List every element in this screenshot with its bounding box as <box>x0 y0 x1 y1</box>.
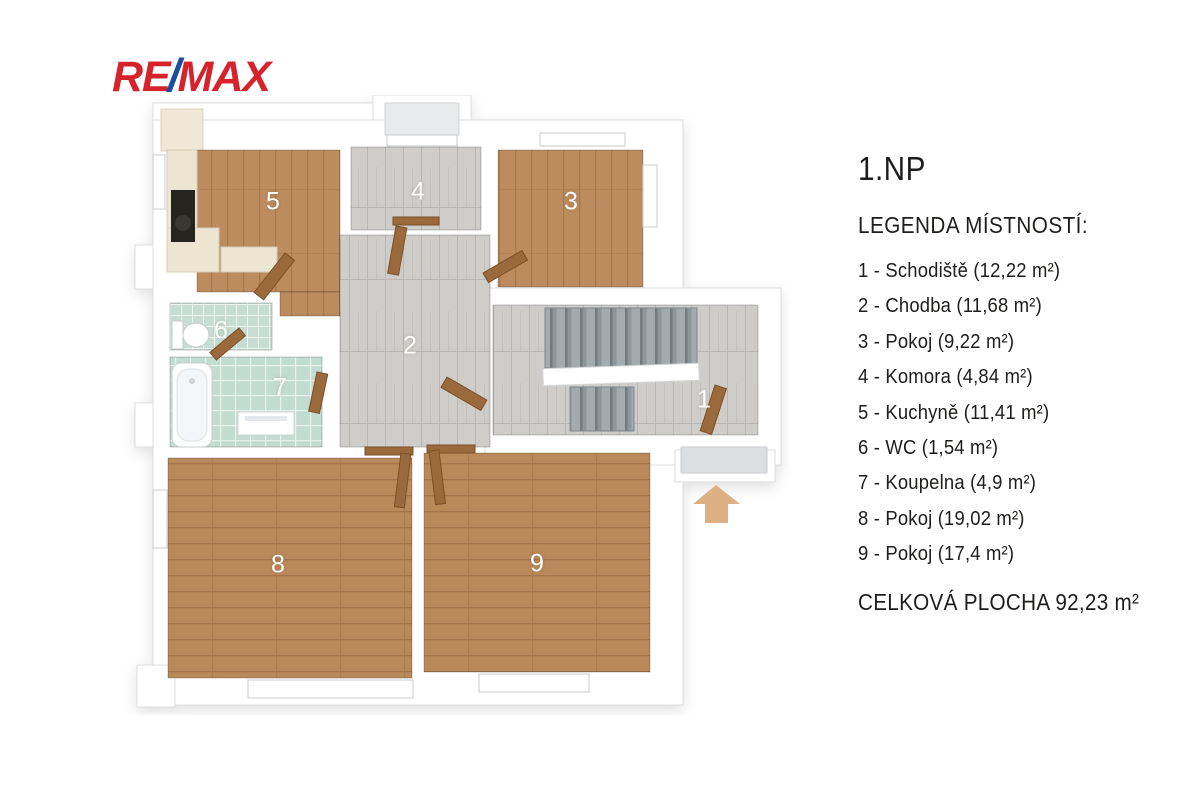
room-kitchen-threshold <box>280 292 340 316</box>
bathtub-icon <box>172 363 212 447</box>
window-pokoj9-bottom <box>479 674 589 692</box>
page: RE/MAX <box>0 0 1200 799</box>
legend-item-2: 2 - Chodba (11,68 m²) <box>858 288 1200 323</box>
window-pokoj3-right <box>643 165 657 227</box>
logo-re: RE <box>112 53 170 101</box>
legend-item-1: 1 - Schodiště (12,22 m²) <box>858 253 1200 288</box>
legend-item-3: 3 - Pokoj (9,22 m²) <box>858 324 1200 359</box>
floor-plan: 1 2 3 4 5 6 7 8 9 <box>115 95 790 715</box>
window-kitchen-left <box>153 155 165 209</box>
legend-list: 1 - Schodiště (12,22 m²) 2 - Chodba (11,… <box>858 253 1200 572</box>
legend-item-4: 4 - Komora (4,84 m²) <box>858 359 1200 394</box>
room-label-3: 3 <box>564 188 578 217</box>
room-label-9: 9 <box>530 550 544 579</box>
toilet-icon <box>172 321 209 349</box>
room-label-1: 1 <box>697 386 711 415</box>
legend-item-9: 9 - Pokoj (17,4 m²) <box>858 536 1200 571</box>
room-label-8: 8 <box>271 551 285 580</box>
floor-title: 1.NP <box>858 150 1200 188</box>
legend-item-5: 5 - Kuchyně (11,41 m²) <box>858 395 1200 430</box>
entrance-opening <box>681 447 767 473</box>
legend-item-6: 6 - WC (1,54 m²) <box>858 430 1200 465</box>
legend-heading: LEGENDA MÍSTNOSTÍ: <box>858 212 1200 239</box>
window-pokoj8-left <box>153 490 167 548</box>
legend-item-7: 7 - Koupelna (4,9 m²) <box>858 465 1200 500</box>
chimney <box>161 109 203 151</box>
entrance-arrow-icon <box>693 485 740 523</box>
legend-item-8: 8 - Pokoj (19,02 m²) <box>858 501 1200 536</box>
window-balcony-door <box>387 135 457 146</box>
room-label-6: 6 <box>214 317 228 346</box>
room-pokoj3-floor <box>498 150 643 287</box>
room-label-2: 2 <box>403 332 417 361</box>
window-pokoj8-bottom <box>248 680 413 698</box>
door-komora <box>393 217 439 225</box>
window-pokoj3-top <box>540 133 625 146</box>
room-label-4: 4 <box>411 178 425 207</box>
room-pokoj8-floor <box>168 458 412 678</box>
room-label-7: 7 <box>273 374 287 403</box>
total-area: CELKOVÁ PLOCHA 92,23 m² <box>858 589 1200 616</box>
room-label-5: 5 <box>266 188 280 217</box>
washer-icon <box>238 412 294 435</box>
logo-max: MAX <box>178 53 271 101</box>
legend-panel: 1.NP LEGENDA MÍSTNOSTÍ: 1 - Schodiště (1… <box>858 150 1200 616</box>
floor-plan-drawing <box>115 95 790 715</box>
remax-logo: RE/MAX <box>112 48 270 102</box>
balcony <box>385 103 459 135</box>
